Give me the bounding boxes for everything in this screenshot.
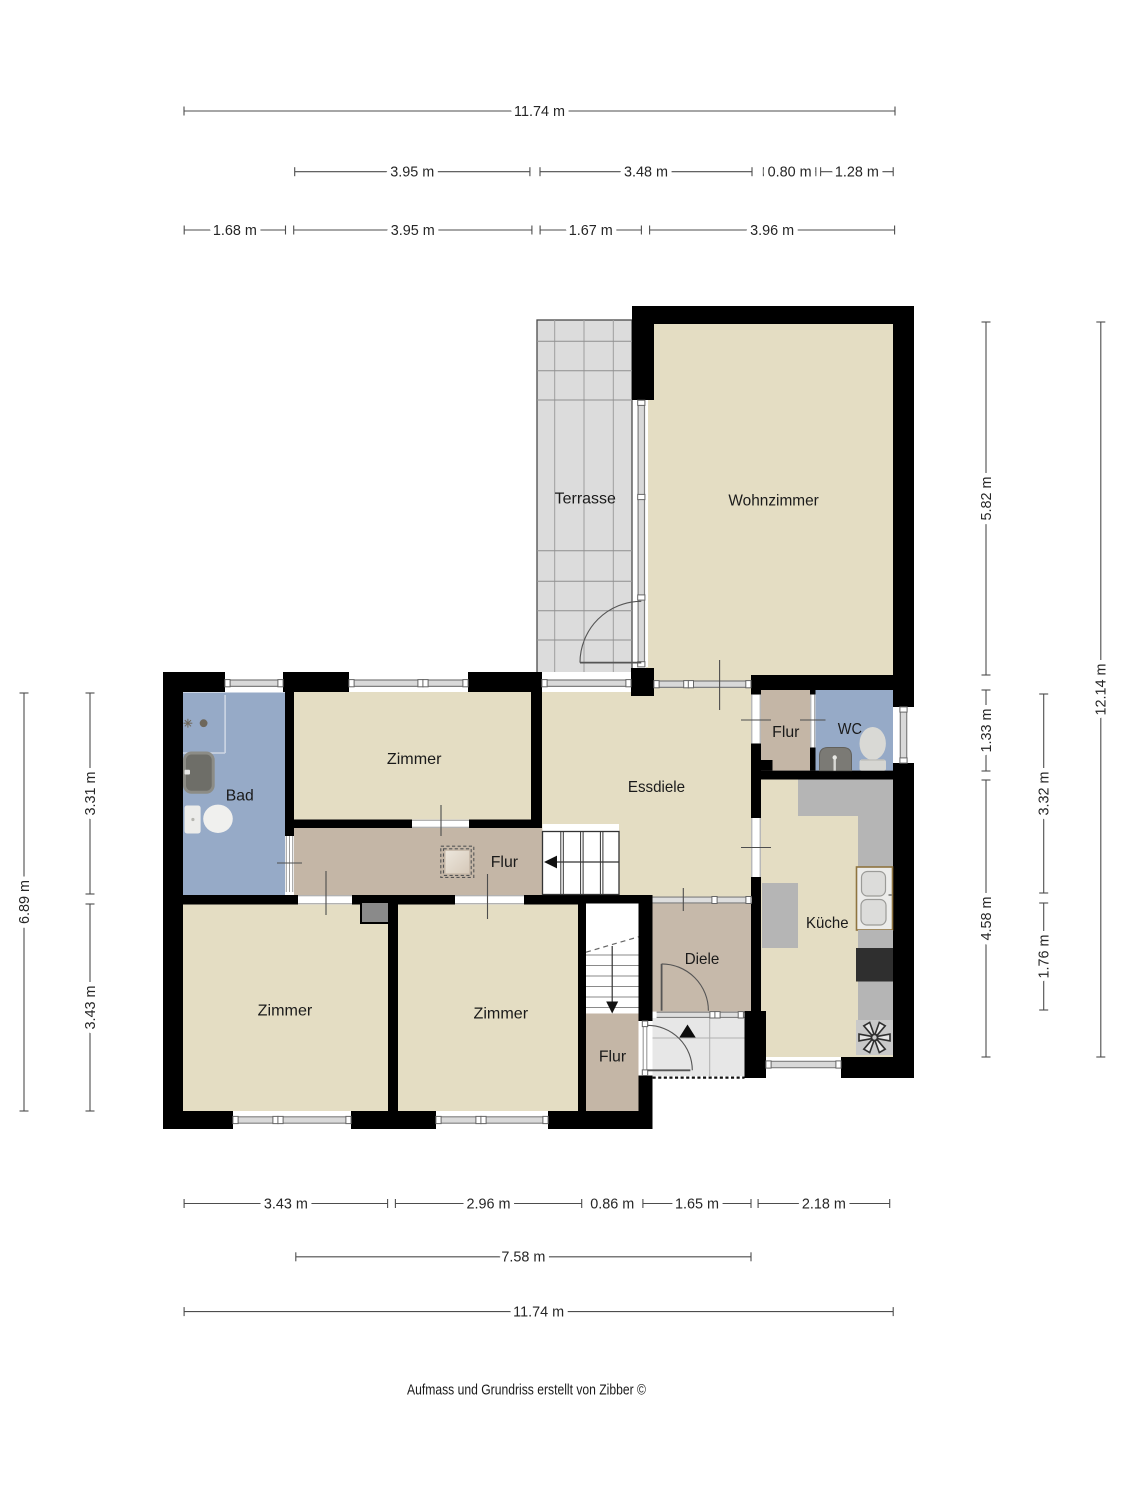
svg-text:11.74 m: 11.74 m [513, 1305, 564, 1321]
svg-text:0.86 m: 0.86 m [590, 1196, 634, 1212]
svg-text:Terrasse: Terrasse [555, 491, 616, 508]
svg-text:1.76 m: 1.76 m [1037, 934, 1053, 978]
svg-text:5.82 m: 5.82 m [979, 476, 995, 520]
svg-text:Zimmer: Zimmer [474, 1005, 529, 1022]
svg-text:1.65 m: 1.65 m [675, 1196, 719, 1212]
svg-text:Essdiele: Essdiele [628, 779, 685, 796]
svg-text:1.28 m: 1.28 m [835, 165, 879, 181]
svg-text:3.31 m: 3.31 m [83, 771, 99, 815]
svg-text:0.80 m: 0.80 m [768, 165, 812, 181]
svg-text:Wohnzimmer: Wohnzimmer [728, 493, 819, 510]
svg-text:Zimmer: Zimmer [258, 1002, 313, 1019]
svg-text:Aufmass und Grundriss erstellt: Aufmass und Grundriss erstellt von Zibbe… [407, 1382, 646, 1399]
svg-text:3.95 m: 3.95 m [391, 223, 435, 239]
svg-text:2.18 m: 2.18 m [802, 1196, 846, 1212]
svg-text:1.67 m: 1.67 m [569, 223, 613, 239]
svg-text:1.33 m: 1.33 m [979, 708, 995, 752]
svg-text:3.43 m: 3.43 m [83, 985, 99, 1029]
svg-text:1.68 m: 1.68 m [213, 223, 257, 239]
svg-text:Flur: Flur [772, 724, 800, 741]
svg-text:3.32 m: 3.32 m [1037, 771, 1053, 815]
svg-text:3.96 m: 3.96 m [750, 223, 794, 239]
svg-text:3.43 m: 3.43 m [264, 1196, 308, 1212]
svg-text:Flur: Flur [491, 854, 519, 871]
svg-text:6.89 m: 6.89 m [17, 880, 33, 924]
svg-text:3.95 m: 3.95 m [390, 165, 434, 181]
svg-text:Bad: Bad [226, 788, 254, 805]
svg-text:Küche: Küche [806, 915, 849, 932]
svg-text:Zimmer: Zimmer [387, 751, 442, 768]
svg-text:7.58 m: 7.58 m [501, 1250, 545, 1266]
svg-text:3.48 m: 3.48 m [624, 165, 668, 181]
svg-text:11.74 m: 11.74 m [514, 104, 565, 120]
svg-text:WC: WC [838, 721, 862, 738]
svg-text:2.96 m: 2.96 m [467, 1196, 511, 1212]
svg-text:4.58 m: 4.58 m [979, 896, 995, 940]
svg-text:Diele: Diele [685, 951, 720, 968]
svg-text:12.14 m: 12.14 m [1094, 663, 1110, 715]
svg-text:Flur: Flur [599, 1049, 627, 1066]
